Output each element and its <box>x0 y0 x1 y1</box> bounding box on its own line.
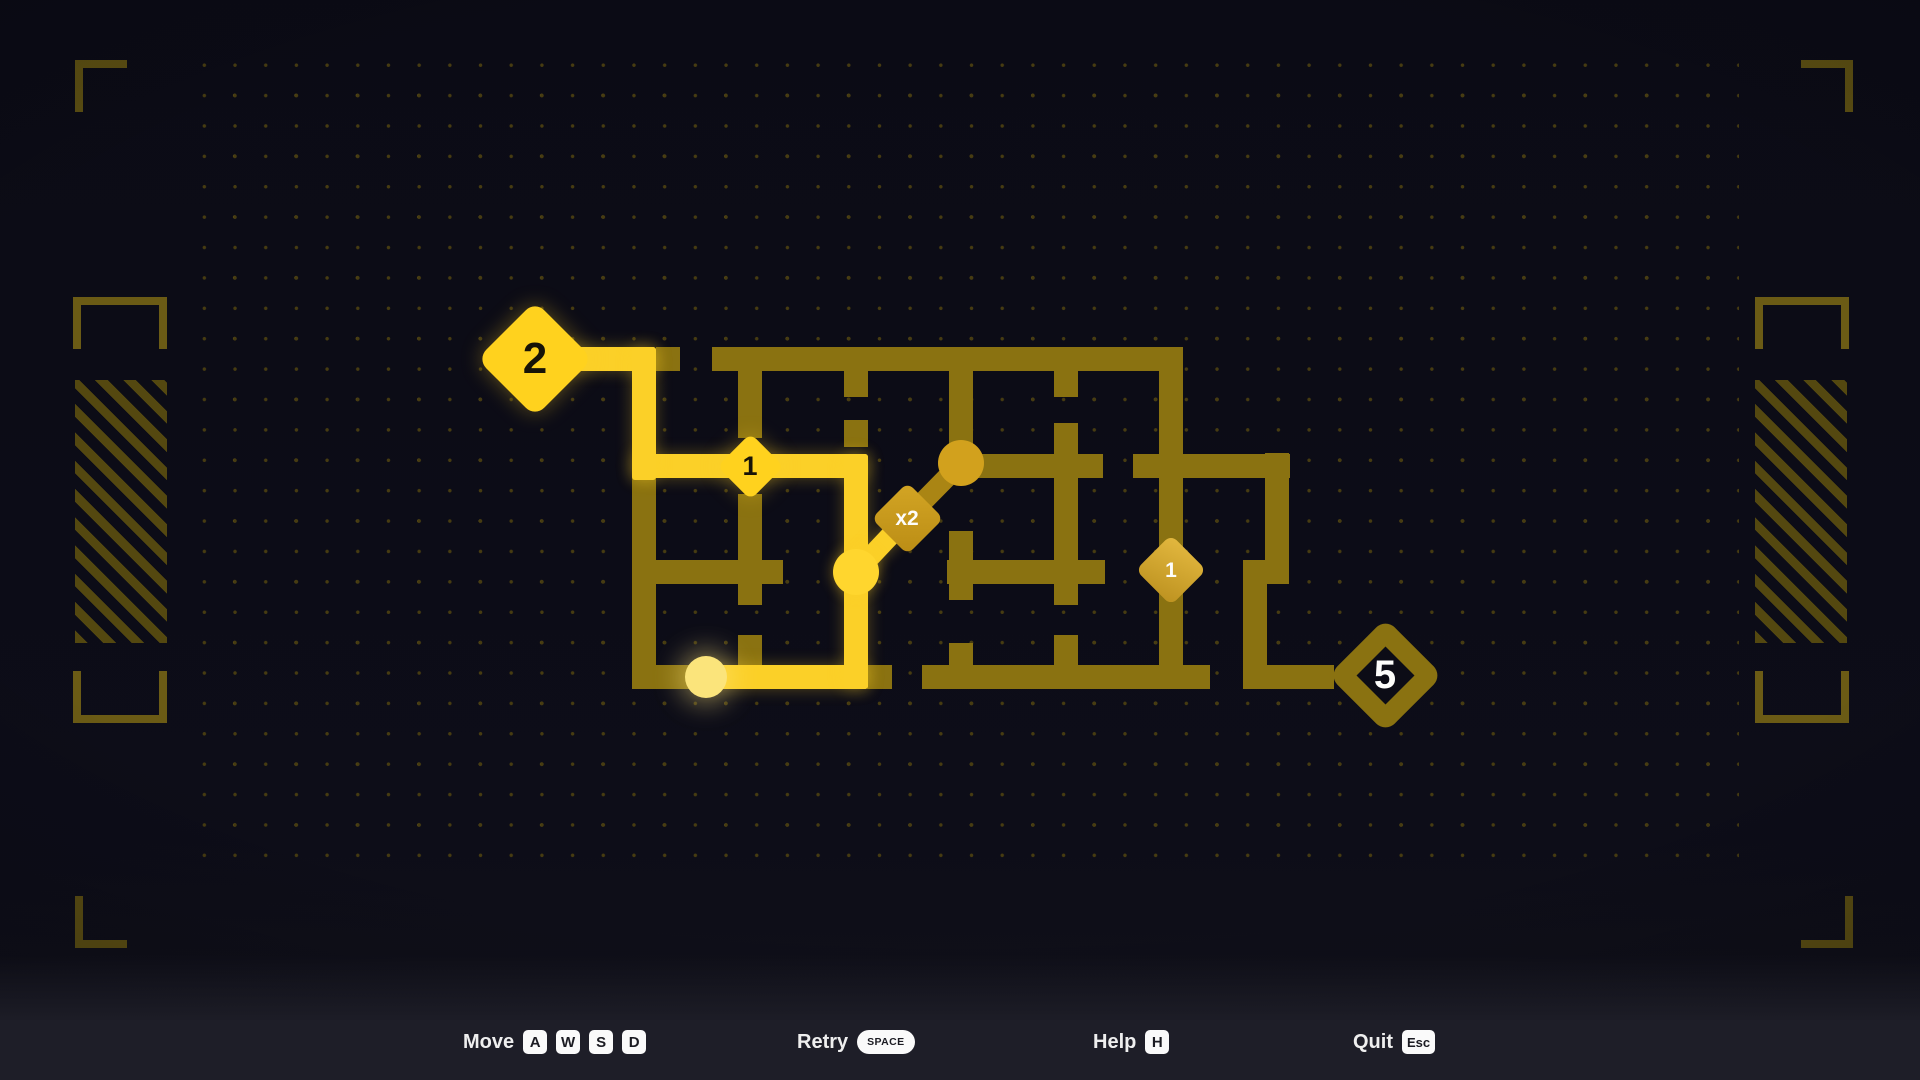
control-retry[interactable]: Retry SPACE <box>797 1029 915 1055</box>
control-move[interactable]: Move A W S D <box>463 1029 646 1055</box>
counter-node-1-value: 1 <box>727 443 774 490</box>
start-node: 2 <box>494 318 576 400</box>
corridor-h <box>652 560 783 584</box>
key-esc: Esc <box>1402 1030 1435 1054</box>
key-s: S <box>589 1030 613 1054</box>
corridor-v <box>1159 368 1183 665</box>
waypoint-visited <box>833 549 879 595</box>
corridor-v <box>632 476 656 689</box>
control-quit[interactable]: Quit Esc <box>1353 1029 1435 1055</box>
corridor-v <box>1054 635 1078 677</box>
counter-node-2: 1 <box>1146 545 1196 595</box>
key-space: SPACE <box>857 1030 914 1054</box>
maze: 21x215 <box>0 0 1920 1080</box>
corridor-v <box>844 368 868 397</box>
counter-node-2-value: 1 <box>1146 545 1196 595</box>
move-label: Move <box>463 1031 514 1054</box>
corridor-h <box>867 665 892 689</box>
start-node-value: 2 <box>494 318 576 400</box>
key-w: W <box>556 1030 580 1054</box>
corridor-v <box>1243 560 1267 689</box>
goal-node: 5 <box>1345 635 1426 716</box>
key-a: A <box>523 1030 547 1054</box>
corridor-v <box>738 365 762 438</box>
corridor-v <box>949 531 973 600</box>
path-trail-v <box>632 347 656 480</box>
corridor-v <box>738 494 762 605</box>
key-h: H <box>1145 1030 1169 1054</box>
bottom-bar <box>0 1020 1920 1080</box>
quit-label: Quit <box>1353 1031 1393 1054</box>
game-screen: 21x215 Move A W S D Retry SPACE Help H Q… <box>0 0 1920 1080</box>
multiplier-node: x2 <box>882 493 933 544</box>
corridor-v <box>949 368 973 445</box>
corridor-h <box>712 347 1183 371</box>
waypoint-gold <box>938 440 984 486</box>
player <box>685 656 727 698</box>
corridor-h <box>656 347 680 371</box>
corridor-h <box>973 454 1103 478</box>
goal-node-value: 5 <box>1345 635 1426 716</box>
corridor-v <box>1054 423 1078 605</box>
bottom-bar-fade <box>0 955 1920 1020</box>
multiplier-node-value: x2 <box>882 493 933 544</box>
corridor-v <box>844 420 868 447</box>
key-d: D <box>622 1030 646 1054</box>
corridor-v <box>1054 368 1078 397</box>
corridor-v <box>1265 453 1289 572</box>
counter-node-1: 1 <box>727 443 774 490</box>
control-help[interactable]: Help H <box>1093 1029 1169 1055</box>
corridor-v <box>949 643 973 677</box>
retry-label: Retry <box>797 1031 848 1054</box>
help-label: Help <box>1093 1031 1136 1054</box>
